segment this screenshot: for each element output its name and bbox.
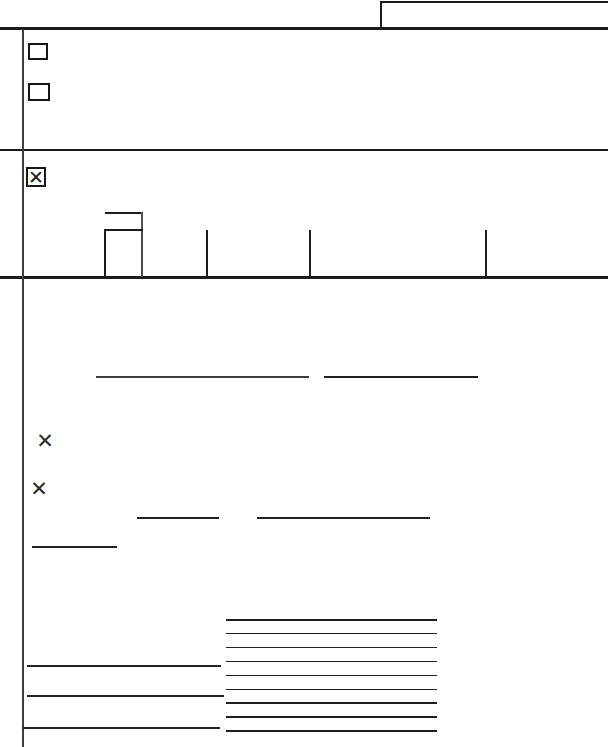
checkbox-option-2[interactable] <box>28 83 50 101</box>
drawn-box-left-side <box>104 231 106 277</box>
scanned-page: ✕ ✕ ✕ <box>0 0 608 747</box>
ruled-line <box>226 619 437 621</box>
fill-in-line-4 <box>257 517 430 519</box>
x-mark-2: ✕ <box>30 480 48 498</box>
ruled-line <box>226 689 437 691</box>
checkbox-option-1[interactable] <box>28 43 48 60</box>
ruled-line <box>226 633 437 635</box>
ruled-line <box>226 661 437 663</box>
checkbox-checked[interactable]: ✕ <box>26 167 46 187</box>
column-tick-3 <box>485 230 487 277</box>
signature-line-3 <box>23 727 220 729</box>
x-mark-1: ✕ <box>36 432 54 450</box>
ruled-line <box>226 675 437 677</box>
drawn-box-lid-line <box>104 229 143 231</box>
x-mark-1-glyph: ✕ <box>36 431 54 452</box>
fill-in-line-1 <box>96 376 309 378</box>
drawn-box-top-line <box>105 212 143 214</box>
x-mark-2-glyph: ✕ <box>30 479 48 500</box>
ruled-line <box>226 647 437 649</box>
fill-in-line-3 <box>137 517 219 519</box>
fill-in-line-5 <box>32 546 117 548</box>
column-tick-2 <box>309 230 311 277</box>
ruled-lines-area <box>226 619 437 734</box>
column-tick-1 <box>206 230 208 277</box>
signature-line-2 <box>27 695 224 697</box>
drawn-box-right-side <box>141 231 143 277</box>
section-divider-rule-2 <box>0 276 608 279</box>
ruled-line <box>226 730 437 732</box>
ruled-line <box>226 716 437 718</box>
fill-in-line-2 <box>324 376 478 378</box>
header-divider-rule <box>0 27 608 30</box>
x-in-box-mark: ✕ <box>28 168 44 187</box>
section-divider-rule-1 <box>0 149 608 151</box>
form-number-box <box>380 1 608 29</box>
ruled-line <box>226 702 437 704</box>
signature-line-1 <box>27 665 221 667</box>
left-margin-rule <box>22 29 24 747</box>
